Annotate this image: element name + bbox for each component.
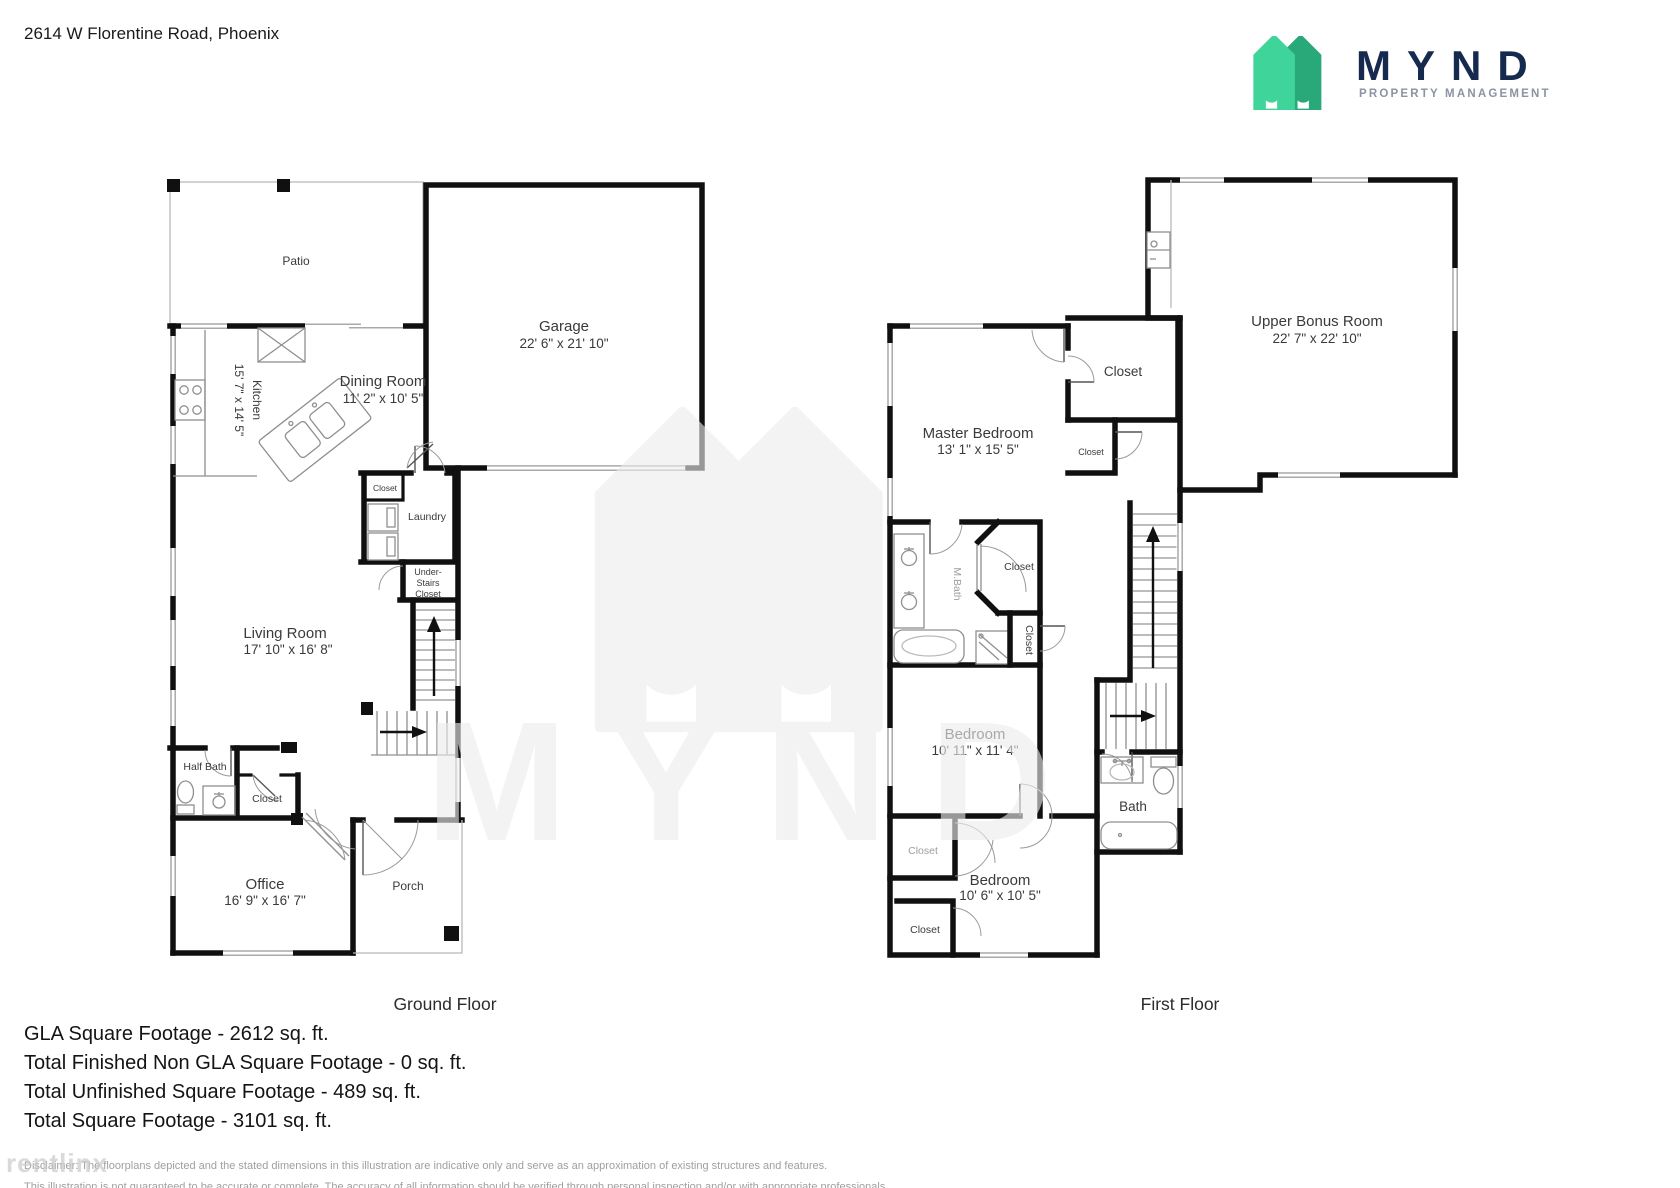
- room-label-master-closet: Closet: [1104, 364, 1143, 379]
- toilet-icon: [177, 805, 194, 814]
- room-dims-dining: 11' 2" x 10' 5": [343, 391, 424, 406]
- brand-tagline: PROPERTY MANAGEMENT: [1359, 88, 1551, 100]
- room-label-garage: Garage: [539, 318, 589, 335]
- first-floor-plan: Master Bedroom 13' 1" x 15' 5" Closet Cl…: [880, 168, 1480, 1008]
- room-label-under-stairs-1: Under-: [414, 567, 442, 577]
- room-label-laundry-closet: Closet: [373, 483, 398, 493]
- room-label-master: Master Bedroom: [923, 425, 1034, 442]
- room-label-under-stairs-2: Stairs: [416, 578, 440, 588]
- bath-tub-icon: [1101, 822, 1177, 849]
- summary-line-unfinished: Total Unfinished Square Footage - 489 sq…: [24, 1078, 466, 1107]
- mynd-logo-icon: [1240, 36, 1340, 110]
- property-address: 2614 W Florentine Road, Phoenix: [24, 24, 279, 44]
- room-label-linen-closet: Closet: [1023, 625, 1035, 655]
- room-dims-bonus: 22' 7" x 22' 10": [1272, 331, 1361, 346]
- disclaimer-line-2: This illustration is not guaranteed to b…: [24, 1181, 1524, 1188]
- master-door: [1032, 328, 1064, 362]
- sink-icon: [203, 786, 235, 815]
- room-dims-living: 17' 10" x 16' 8": [243, 642, 332, 657]
- brand-name: MYND: [1356, 42, 1544, 90]
- stairs-lower-icon: [361, 702, 455, 755]
- half-bath-walls: [170, 742, 298, 820]
- room-label-bath: Bath: [1119, 799, 1147, 814]
- room-label-hall-closet-small: Closet: [1078, 447, 1104, 457]
- summary-line-non-gla: Total Finished Non GLA Square Footage - …: [24, 1049, 466, 1078]
- room-dims-bedroom2: 10' 11" x 11' 4": [931, 743, 1018, 758]
- stairs-lower-icon-first: [1106, 683, 1166, 749]
- room-label-kitchen: Kitchen: [250, 380, 264, 420]
- room-label-bedroom3: Bedroom: [970, 872, 1031, 889]
- room-label-bedroom3-closet: Closet: [908, 845, 938, 857]
- room-label-half-bath: Half Bath: [183, 761, 226, 773]
- room-dims-garage: 22' 6" x 21' 10": [519, 336, 608, 351]
- room-dims-bedroom3: 10' 6" x 10' 5": [959, 888, 1041, 903]
- room-label-walkin-closet: Closet: [1004, 561, 1034, 573]
- room-dims-office: 16' 9" x 16' 7": [224, 893, 306, 908]
- summary-line-total: Total Square Footage - 3101 sq. ft.: [24, 1107, 466, 1136]
- disclaimer-line-1: Disclaimer: The floorplans depicted and …: [24, 1160, 1524, 1172]
- stairs-up-icon-first: [1097, 503, 1177, 680]
- room-label-porch: Porch: [392, 879, 423, 893]
- floorplan-page: 2614 W Florentine Road, Phoenix MYND PRO…: [0, 0, 1680, 1188]
- room-dims-kitchen: 15' 7" x 14' 5": [232, 364, 246, 436]
- bathtub-icon: [894, 630, 964, 663]
- room-label-living: Living Room: [243, 625, 326, 642]
- rentlinx-watermark: rentlinx: [6, 1148, 108, 1179]
- room-label-bonus: Upper Bonus Room: [1251, 313, 1383, 330]
- room-label-under-stairs-3: Closet: [415, 589, 441, 599]
- patio-outline: [167, 179, 423, 326]
- bath-toilet-icon: [1151, 757, 1176, 767]
- room-label-hall-closet: Closet: [252, 793, 282, 805]
- summary-line-gla: GLA Square Footage - 2612 sq. ft.: [24, 1020, 466, 1049]
- room-label-bedroom2: Bedroom: [945, 726, 1006, 743]
- stairs-up-icon: [413, 600, 455, 708]
- room-label-laundry: Laundry: [408, 511, 447, 523]
- room-dims-master: 13' 1" x 15' 5": [937, 442, 1019, 457]
- ground-floor-plan: Patio Garage 22' 6" x 21' 10" Kitchen 15…: [165, 168, 725, 1008]
- stove-icon: [175, 380, 205, 420]
- room-label-bedroom3-closet2: Closet: [910, 924, 940, 936]
- room-label-patio: Patio: [282, 254, 310, 268]
- room-label-mbath: M.Bath: [951, 567, 963, 600]
- square-footage-summary: GLA Square Footage - 2612 sq. ft. Total …: [24, 1020, 466, 1136]
- room-label-dining: Dining Room: [340, 373, 427, 390]
- master-bath: [890, 522, 1040, 665]
- room-label-office: Office: [246, 876, 285, 893]
